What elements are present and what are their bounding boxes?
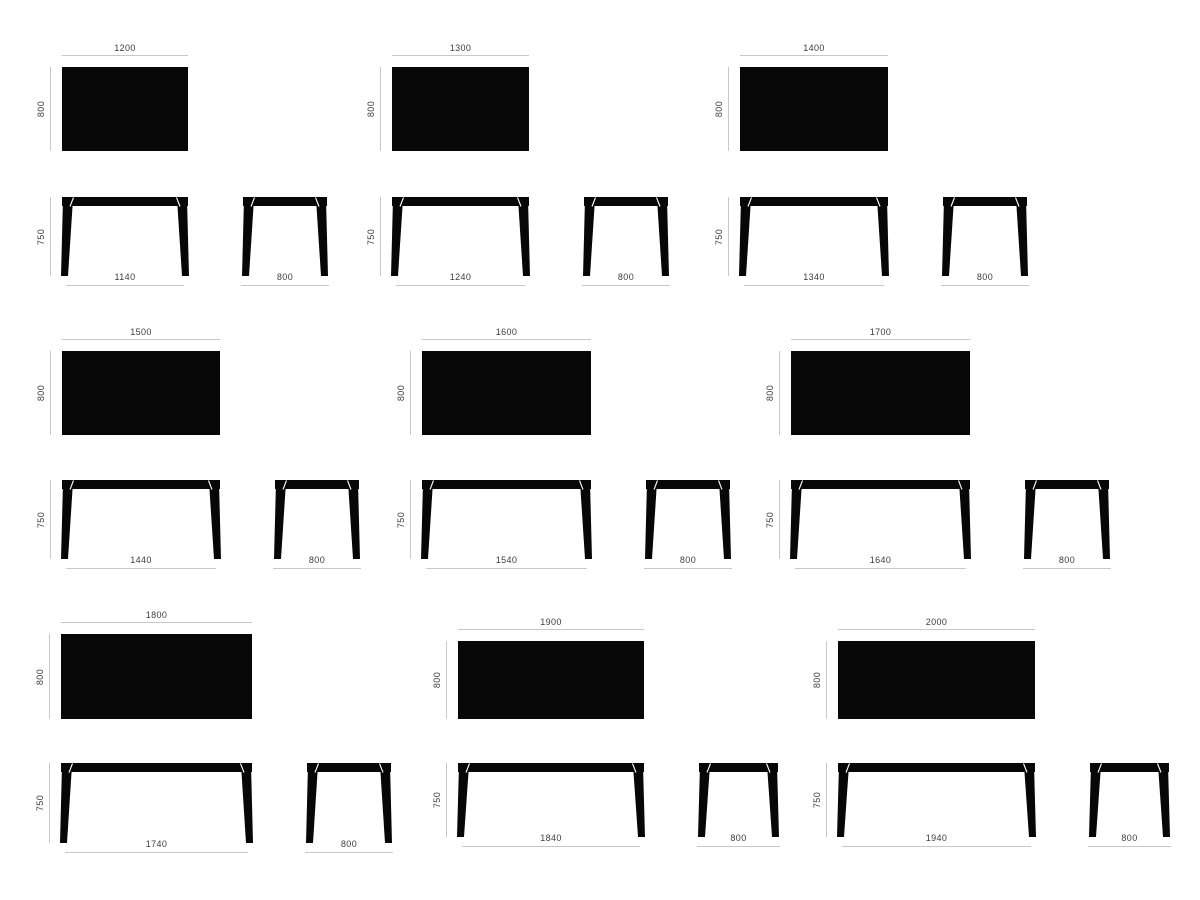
side-width-dim-label: 800 xyxy=(719,833,759,843)
left-leg xyxy=(391,199,403,276)
top-depth-dim-line xyxy=(779,351,780,435)
front-floor-dim-line xyxy=(65,852,248,853)
top-width-dim-label: 1400 xyxy=(794,43,834,53)
top-width-dim-label: 1200 xyxy=(105,43,145,53)
tabletop-slab xyxy=(458,763,644,772)
right-leg xyxy=(380,765,392,843)
side-floor-dim-line xyxy=(305,852,393,853)
side-width-dim-label: 800 xyxy=(265,272,305,282)
right-leg xyxy=(657,199,669,276)
front-view xyxy=(59,197,191,276)
top-width-dim-label: 2000 xyxy=(917,617,957,627)
side-width-dim-label: 800 xyxy=(297,555,337,565)
left-leg xyxy=(242,199,254,276)
front-height-dim-label: 750 xyxy=(36,217,46,257)
front-floor-dim-label: 1140 xyxy=(105,272,145,282)
front-view xyxy=(455,763,647,837)
side-view xyxy=(240,197,330,276)
left-leg xyxy=(61,482,73,559)
top-depth-dim-line xyxy=(49,634,50,719)
top-width-dim-line xyxy=(422,339,591,340)
front-view xyxy=(788,480,973,559)
front-height-dim-line xyxy=(779,480,780,559)
side-floor-dim-line xyxy=(1023,568,1111,569)
front-floor-dim-label: 1440 xyxy=(121,555,161,565)
front-height-dim-label: 750 xyxy=(366,217,376,257)
right-leg xyxy=(633,765,645,837)
right-leg xyxy=(1016,199,1028,276)
tabletop-slab xyxy=(61,763,252,772)
top-width-dim-label: 1800 xyxy=(137,610,177,620)
front-floor-dim-label: 1740 xyxy=(137,839,177,849)
top-width-dim-label: 1700 xyxy=(861,327,901,337)
side-width-dim-label: 800 xyxy=(965,272,1005,282)
front-height-dim-label: 750 xyxy=(765,500,775,540)
side-floor-dim-line xyxy=(941,285,1029,286)
side-view xyxy=(1087,763,1172,837)
tabletop-slab xyxy=(307,763,391,772)
left-leg xyxy=(1024,482,1036,559)
front-floor-dim-label: 1340 xyxy=(794,272,834,282)
front-height-dim-line xyxy=(50,197,51,276)
front-height-dim-line xyxy=(410,480,411,559)
top-view xyxy=(740,67,888,151)
front-height-dim-label: 750 xyxy=(432,780,442,820)
top-depth-dim-line xyxy=(410,351,411,435)
top-depth-dim-line xyxy=(50,351,51,435)
top-depth-dim-label: 800 xyxy=(714,89,724,129)
top-depth-dim-line xyxy=(50,67,51,151)
top-view xyxy=(791,351,970,435)
top-depth-dim-label: 800 xyxy=(36,89,46,129)
top-width-dim-label: 1900 xyxy=(531,617,571,627)
tabletop-slab xyxy=(584,197,668,206)
top-width-dim-label: 1500 xyxy=(121,327,161,337)
top-depth-dim-line xyxy=(826,641,827,719)
tabletop-slab xyxy=(646,480,730,489)
right-leg xyxy=(348,482,360,559)
tabletop-slab xyxy=(275,480,359,489)
front-view xyxy=(59,480,223,559)
top-width-dim-line xyxy=(62,55,188,56)
tabletop-slab xyxy=(243,197,327,206)
left-leg xyxy=(698,765,710,837)
side-width-dim-label: 800 xyxy=(606,272,646,282)
top-depth-dim-line xyxy=(728,67,729,151)
top-view xyxy=(422,351,591,435)
left-leg xyxy=(1089,765,1101,837)
left-leg xyxy=(739,199,751,276)
right-leg xyxy=(1158,765,1170,837)
front-floor-dim-line xyxy=(66,285,184,286)
front-height-dim-label: 750 xyxy=(35,783,45,823)
front-height-dim-line xyxy=(728,197,729,276)
top-width-dim-line xyxy=(458,629,644,630)
left-leg xyxy=(60,765,72,843)
front-height-dim-line xyxy=(49,763,50,843)
side-view xyxy=(581,197,671,276)
left-leg xyxy=(942,199,954,276)
left-leg xyxy=(274,482,286,559)
front-height-dim-line xyxy=(446,763,447,837)
side-width-dim-label: 800 xyxy=(668,555,708,565)
front-floor-dim-label: 1240 xyxy=(441,272,481,282)
right-leg xyxy=(518,199,530,276)
left-leg xyxy=(645,482,657,559)
right-leg xyxy=(767,765,779,837)
tabletop-slab xyxy=(1025,480,1109,489)
front-floor-dim-line xyxy=(744,285,884,286)
tabletop-slab xyxy=(838,763,1035,772)
top-depth-dim-line xyxy=(446,641,447,719)
front-floor-dim-line xyxy=(795,568,966,569)
side-floor-dim-line xyxy=(644,568,732,569)
top-view xyxy=(62,351,220,435)
top-depth-dim-label: 800 xyxy=(432,660,442,700)
side-width-dim-label: 800 xyxy=(329,839,369,849)
left-leg xyxy=(421,482,433,559)
front-floor-dim-label: 1940 xyxy=(917,833,957,843)
top-depth-dim-label: 800 xyxy=(366,89,376,129)
top-view xyxy=(392,67,529,151)
diagram-canvas: 1200800750114080013008007501240800140080… xyxy=(0,0,1200,900)
front-view xyxy=(419,480,594,559)
front-height-dim-line xyxy=(380,197,381,276)
side-view xyxy=(1022,480,1112,559)
side-floor-dim-line xyxy=(1088,846,1171,847)
front-floor-dim-line xyxy=(462,846,640,847)
top-view xyxy=(458,641,644,719)
front-height-dim-label: 750 xyxy=(714,217,724,257)
side-width-dim-label: 800 xyxy=(1110,833,1150,843)
front-floor-dim-line xyxy=(426,568,587,569)
front-floor-dim-label: 1840 xyxy=(531,833,571,843)
tabletop-slab xyxy=(943,197,1027,206)
front-height-dim-label: 750 xyxy=(812,780,822,820)
front-height-dim-label: 750 xyxy=(36,500,46,540)
right-leg xyxy=(316,199,328,276)
side-view xyxy=(696,763,781,837)
top-depth-dim-label: 800 xyxy=(812,660,822,700)
right-leg xyxy=(877,199,889,276)
top-view xyxy=(62,67,188,151)
tabletop-slab xyxy=(62,197,188,206)
side-view xyxy=(643,480,733,559)
front-floor-dim-line xyxy=(396,285,525,286)
side-width-dim-label: 800 xyxy=(1047,555,1087,565)
left-leg xyxy=(457,765,469,837)
right-leg xyxy=(580,482,592,559)
front-floor-dim-label: 1540 xyxy=(487,555,527,565)
top-width-dim-line xyxy=(62,339,220,340)
right-leg xyxy=(719,482,731,559)
front-view xyxy=(389,197,532,276)
right-leg xyxy=(209,482,221,559)
top-width-dim-line xyxy=(61,622,252,623)
front-height-dim-line xyxy=(826,763,827,837)
front-height-dim-label: 750 xyxy=(396,500,406,540)
left-leg xyxy=(790,482,802,559)
tabletop-slab xyxy=(791,480,970,489)
tabletop-slab xyxy=(422,480,591,489)
left-leg xyxy=(306,765,318,843)
side-floor-dim-line xyxy=(273,568,361,569)
right-leg xyxy=(241,765,253,843)
top-width-dim-line xyxy=(838,629,1035,630)
right-leg xyxy=(1098,482,1110,559)
front-floor-dim-label: 1640 xyxy=(861,555,901,565)
front-height-dim-line xyxy=(50,480,51,559)
top-view xyxy=(838,641,1035,719)
right-leg xyxy=(1024,765,1036,837)
right-leg xyxy=(177,199,189,276)
top-width-dim-line xyxy=(791,339,970,340)
side-view xyxy=(304,763,394,843)
front-floor-dim-line xyxy=(842,846,1031,847)
top-depth-dim-label: 800 xyxy=(396,373,406,413)
left-leg xyxy=(583,199,595,276)
top-width-dim-label: 1600 xyxy=(487,327,527,337)
top-depth-dim-label: 800 xyxy=(35,657,45,697)
front-view xyxy=(737,197,891,276)
side-floor-dim-line xyxy=(241,285,329,286)
top-view xyxy=(61,634,252,719)
front-view xyxy=(58,763,255,843)
tabletop-slab xyxy=(699,763,778,772)
side-view xyxy=(940,197,1030,276)
side-view xyxy=(272,480,362,559)
side-floor-dim-line xyxy=(697,846,780,847)
top-depth-dim-label: 800 xyxy=(36,373,46,413)
right-leg xyxy=(959,482,971,559)
left-leg xyxy=(61,199,73,276)
side-floor-dim-line xyxy=(582,285,670,286)
top-width-dim-line xyxy=(740,55,888,56)
tabletop-slab xyxy=(1090,763,1169,772)
top-width-dim-line xyxy=(392,55,529,56)
top-depth-dim-line xyxy=(380,67,381,151)
tabletop-slab xyxy=(740,197,888,206)
front-view xyxy=(835,763,1038,837)
top-width-dim-label: 1300 xyxy=(441,43,481,53)
tabletop-slab xyxy=(392,197,529,206)
top-depth-dim-label: 800 xyxy=(765,373,775,413)
tabletop-slab xyxy=(62,480,220,489)
left-leg xyxy=(837,765,849,837)
front-floor-dim-line xyxy=(66,568,216,569)
